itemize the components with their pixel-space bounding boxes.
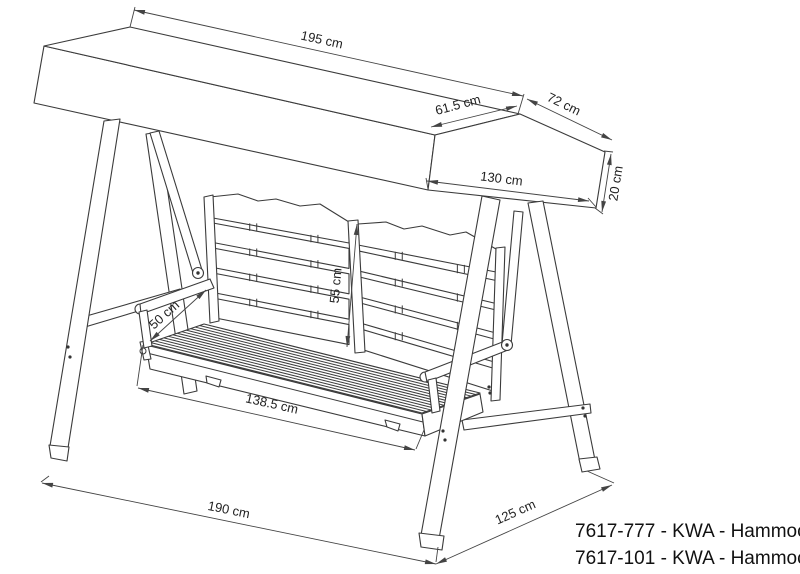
back-right-foot	[579, 457, 600, 472]
dimension-label-frame-depth: 125 cm	[493, 496, 538, 527]
front-right-foot	[419, 533, 444, 550]
product-code-2: 7617-101 - KWA - Hammock	[575, 548, 800, 569]
product-codes: 7617-777 - KWA - Hammock 7617-101 - KWA …	[575, 521, 800, 569]
left-pivot-pin	[196, 271, 199, 274]
front-left-leg	[50, 119, 120, 448]
hammock-swing-drawing: 195 cm61.5 cm72 cm130 cm20 cm55 cm50 cm1…	[0, 0, 800, 574]
front-left-foot	[49, 445, 69, 461]
back-right-leg	[528, 201, 595, 463]
right-pivot-pin	[505, 343, 508, 346]
dimension-label-backrest-height: 55 cm	[327, 267, 345, 304]
dimension-frame-width: 190 cm	[42, 483, 436, 564]
right-hanger-bar	[502, 211, 523, 345]
technical-drawing-page: 195 cm61.5 cm72 cm130 cm20 cm55 cm50 cm1…	[0, 0, 800, 574]
product-code-1: 7617-777 - KWA - Hammock	[575, 521, 800, 542]
dimension-canopy-skirt-height: 20 cm	[601, 154, 625, 212]
dimension-label-frame-width: 190 cm	[207, 498, 252, 521]
dimension-label-canopy-back-slope: 72 cm	[545, 89, 583, 118]
